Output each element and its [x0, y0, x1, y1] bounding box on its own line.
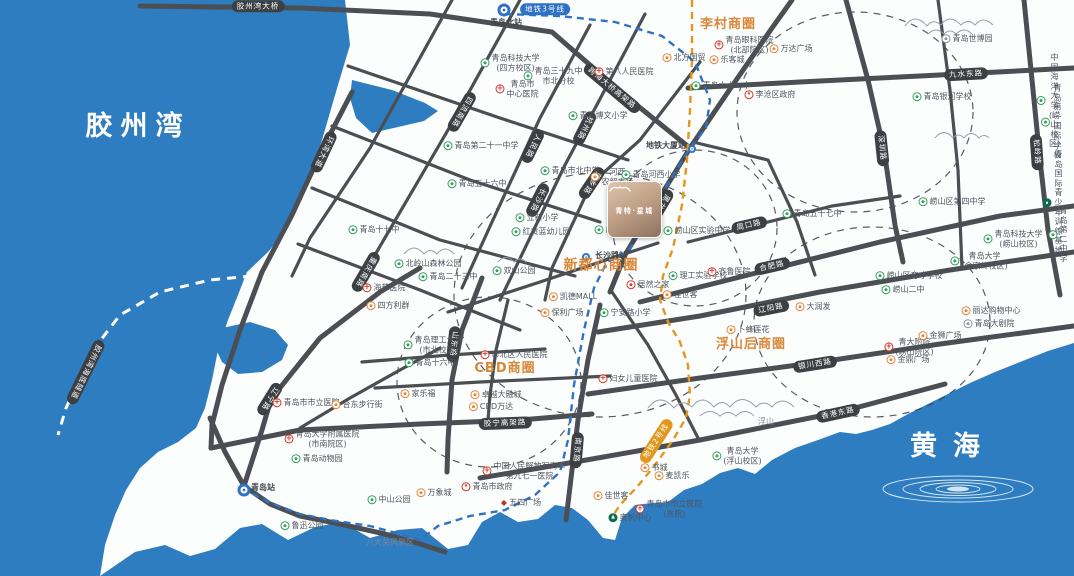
map-label-text: 南京路	[572, 437, 582, 463]
school-icon	[950, 257, 959, 266]
map-label-shopping: 保利广场	[541, 308, 584, 318]
map-label-text: 青岛二十三中	[430, 272, 478, 282]
map-label-shopping: 四方利群	[367, 301, 410, 311]
hospital-icon	[285, 435, 294, 444]
map-label-hospital: 中国人民解放军海军 第九七一医院	[483, 461, 566, 480]
map-label-text: 中山公园	[379, 495, 411, 505]
map-label-school: 崂山区育才学校	[876, 271, 943, 281]
shopred-icon	[627, 281, 636, 290]
map-label-park: 鲁迅公园	[281, 521, 324, 531]
park-icon	[281, 522, 290, 531]
map-label-text: 深圳路	[877, 135, 887, 161]
school-icon	[876, 272, 885, 281]
map-label-text: 八大关风景区	[366, 538, 414, 548]
hospital-icon	[884, 343, 893, 352]
map-label-text: 青岛六十一中	[703, 81, 751, 91]
hospital-icon	[595, 68, 604, 77]
shopping-icon	[591, 173, 600, 182]
map-label-text: 麦凯乐	[666, 471, 690, 481]
map-label-text: 乐客城	[721, 55, 745, 65]
map-label-text: 佳世客	[674, 290, 698, 300]
map-label-text: 四方利群	[378, 301, 410, 311]
map-label-text: 卜蜂莲花	[738, 325, 770, 335]
map-label-text: 地铁3号线	[525, 5, 565, 13]
map-label-text: 红黄蓝幼儿园	[523, 227, 571, 237]
map-label-hospital: 市北区人民医院	[481, 350, 548, 360]
shopping-icon	[663, 54, 672, 63]
map-label-hospital: 青岛大学附属医院 (市南院区)	[285, 429, 360, 448]
map-label-road: 胶宁高架路	[479, 416, 532, 429]
map-label-school: 崂山区第四中学	[919, 197, 986, 207]
school-icon	[919, 198, 928, 207]
map-label-text: 青岛第一国际学校	[1052, 84, 1063, 161]
map-label-district: CBD商圈	[474, 361, 535, 377]
shopping-icon	[367, 302, 376, 311]
school-icon	[1041, 118, 1050, 127]
map-label-school: 青岛博文小学	[569, 111, 628, 121]
map-label-school: 青岛银河学校	[913, 92, 972, 102]
map-label-shopping: 凯德MALL	[549, 292, 597, 302]
map-label-shopping: 卜蜂莲花	[727, 325, 770, 335]
map-label-shopred: 居然之家	[627, 280, 670, 290]
govt-icon	[462, 483, 471, 492]
map-label-text: 李村商圈	[700, 17, 756, 33]
map-label-road: 九水东路	[944, 67, 989, 81]
map-label-text: 青岛眼科医院 (北部院区)	[726, 35, 774, 54]
map-label-hospital: 妇女儿童医院	[599, 374, 658, 384]
map-label-shopping: 北方国贸	[663, 53, 706, 63]
shopping-icon	[594, 492, 603, 501]
map-label-text: 双山公园	[504, 266, 536, 276]
hospital-icon	[483, 467, 492, 476]
map-label-school: 青岛科技大学 (崂山校区)	[984, 229, 1043, 248]
map-label-shopping: 大润发	[796, 302, 831, 312]
school-icon	[349, 226, 358, 235]
map-label-text: 鲁迅公园	[292, 521, 324, 531]
map-label-text: 海慈医院	[374, 283, 406, 293]
map-label-text: 中国人民解放军海军 第九七一医院	[494, 461, 566, 480]
map-label-text: 市北区人民医院	[492, 350, 548, 360]
map-label-text: 青岛市政府	[473, 482, 513, 492]
shopping-icon	[417, 489, 426, 498]
school-icon	[404, 341, 413, 350]
map-label-gray: 青岛大剧院	[964, 319, 1015, 329]
shopping-icon	[710, 56, 719, 65]
map-label-text: 万达广场	[781, 44, 813, 54]
map-label-text: 青岛世博园	[953, 34, 993, 44]
map-label-govt: 李沧区政府	[745, 90, 796, 100]
school-icon	[1049, 231, 1058, 240]
shopping-icon	[469, 403, 478, 412]
map-label-shopping: 金狮广场	[919, 331, 962, 341]
map-label-shopping: 乐客城	[710, 55, 745, 65]
hospital-icon	[481, 351, 490, 360]
map-label-school: 青岛六十一中	[692, 81, 751, 91]
map-label-text: 佳世客	[605, 491, 629, 501]
map-label-text: 青岛大剧院	[975, 319, 1015, 329]
park-icon	[493, 267, 502, 276]
map-label-school: 青岛十六中	[405, 358, 456, 368]
park-icon	[395, 260, 404, 269]
shopping-icon	[796, 303, 805, 312]
map-label-text: 崂山区实验中学	[675, 226, 731, 236]
sail-icon	[609, 514, 618, 523]
map-label-text: 青岛银河学校	[924, 92, 972, 102]
shopping-icon	[727, 326, 736, 335]
map-label-school: 立新小学	[516, 213, 559, 223]
map-label-text: 新都心商圈	[564, 258, 639, 275]
map-label-school: 崂山区实验中学	[664, 226, 731, 236]
school-icon	[783, 210, 792, 219]
map-label-text: 北方国贸	[674, 53, 706, 63]
school-icon	[481, 59, 490, 68]
shopping-icon	[641, 464, 650, 473]
school-icon	[882, 286, 891, 295]
map-label-hospital: 第八人民医院	[595, 67, 654, 77]
map-label-school: 青岛理工大学 (市北校区)	[404, 335, 463, 354]
shopping-icon	[887, 356, 896, 365]
map-label-shopping: 佳世客	[663, 290, 698, 300]
map-label-hospital: 青岛市 中心医院	[496, 79, 539, 98]
map-label-school: 青岛河西小学	[622, 170, 681, 180]
map-label-sail: 奥帆中心	[609, 513, 652, 523]
map-label-text: 青岛站	[251, 483, 275, 493]
school-icon	[595, 226, 604, 235]
school-icon	[600, 309, 609, 318]
school-icon	[569, 112, 578, 121]
map-label-shopping: 万达广场	[770, 44, 813, 54]
map-label-shopping: 麦凯乐	[655, 471, 690, 481]
map-label-text: 青岛大学 (金家岭校区)	[961, 251, 1007, 270]
map-label-text: 青岛河西小学	[633, 170, 681, 180]
shopping-icon	[401, 390, 410, 399]
map-label-school: 青岛第一国际学校	[1041, 84, 1063, 161]
map-label-text: CBD商圈	[474, 361, 535, 377]
project-site-name: 青特·星城	[615, 206, 653, 216]
map-label-school: 青岛二十三中	[419, 272, 478, 282]
map-label-school: 崂山二中	[882, 285, 925, 295]
map-label-text: 立新小学	[527, 213, 559, 223]
map-label-school: 青岛第二中学	[1049, 206, 1068, 264]
map-label-station: 青岛北站	[490, 18, 522, 28]
map-label-school: 青岛大学 (浮山校区)	[712, 446, 761, 465]
map-label-text: 胶州湾大桥	[237, 2, 280, 10]
school-icon	[622, 171, 631, 180]
map-label-text: 齐鲁医院	[719, 267, 751, 277]
shopping-icon	[549, 293, 558, 302]
map-label-text: 卓越大融城	[482, 390, 522, 400]
school-icon	[448, 180, 457, 189]
map-label-hospital: 青岛眼科医院 (北部院区)	[715, 35, 774, 54]
map-label-school: 青岛大学 (金家岭校区)	[950, 251, 1007, 270]
map-label-sea: 黄海	[910, 431, 996, 463]
gray-icon	[942, 35, 951, 44]
map-label-text: 青岛动物园	[303, 454, 343, 464]
shopping-icon	[770, 45, 779, 54]
map-label-text: 保利广场	[552, 308, 584, 318]
map-label-shopping: 卓越大融城	[471, 390, 522, 400]
map-label-text: 丽达购物中心	[973, 306, 1021, 316]
map-label-text: 青岛第二中学	[1060, 206, 1068, 264]
map-label-text: 浮山后商圈	[716, 337, 786, 353]
school-icon	[541, 167, 550, 176]
project-site-marker: 青特·星城	[607, 181, 662, 238]
map-label-text: 李沧区政府	[756, 90, 796, 100]
school-icon	[512, 228, 521, 237]
map-label-text: 黄海	[910, 431, 996, 463]
map-label-park: 北岭山森林公园	[395, 259, 462, 269]
map-label-plain: 浮山	[758, 417, 774, 427]
map-label-text: 九水东路	[949, 69, 983, 78]
school-icon	[669, 272, 678, 281]
map-label-text: 崂山区第四中学	[930, 197, 986, 207]
shopping-icon	[332, 401, 341, 410]
map-label-text: 青岛五十六中	[459, 179, 507, 189]
map-label-sea: 胶州湾	[86, 111, 191, 143]
map-label-govt: 青岛市政府	[462, 482, 513, 492]
shopping-icon	[919, 332, 928, 341]
map-label-landmark: 五四广场	[501, 498, 541, 508]
map-label-school: 红黄蓝幼儿园	[512, 227, 571, 237]
map-label-text: 青岛第二十一中学	[455, 141, 519, 151]
landmark-icon	[501, 499, 507, 507]
map-label-text: 奥帆中心	[620, 513, 652, 523]
map-label-shopping: 金鼎广场	[887, 355, 930, 365]
map-label-text: 青岛北站	[490, 18, 522, 28]
map-label-station: 青岛站	[251, 483, 275, 493]
map-label-school: 宁安路小学	[600, 308, 651, 318]
map-label-text: 青岛市 中心医院	[507, 79, 539, 98]
map-label-shopping: 丽达购物中心	[962, 306, 1021, 316]
map-label-text: 青岛十六中	[416, 358, 456, 368]
map-label-shopping: 万象城	[417, 488, 452, 498]
hospital-icon	[273, 399, 282, 408]
map-label-stnicon	[238, 484, 251, 497]
map-label-gray: 青岛世博园	[942, 34, 993, 44]
map-label-text: 万象城	[428, 488, 452, 498]
hospital-icon	[636, 505, 645, 514]
map-label-text: 青岛三十九中 市北分校	[535, 66, 583, 85]
map-label-plain: 八大关风景区	[366, 538, 414, 548]
map-label-park: 青岛动物园	[292, 454, 343, 464]
map-label-m3: 地铁3号线	[520, 3, 570, 15]
hospital-icon	[715, 41, 724, 50]
map-label-text: 大润发	[807, 302, 831, 312]
qingdao-location-map: 青特·星城 胶州湾黄海八大关风景区浮山李村商圈新都心商圈CBD商圈浮山后商圈胶州…	[0, 0, 1074, 576]
hospital-icon	[708, 268, 717, 277]
gray-icon	[964, 320, 973, 329]
map-label-district: 浮山后商圈	[716, 337, 786, 353]
map-label-text: 地铁大厦站	[646, 141, 686, 151]
shopping-icon	[655, 472, 664, 481]
school-icon	[692, 82, 701, 91]
map-label-text: 青岛博文小学	[580, 111, 628, 121]
map-label-district: 新都心商圈	[564, 258, 639, 275]
school-icon	[405, 359, 414, 368]
map-label-school: 青岛五十七中	[783, 209, 842, 219]
map-label-text: 第八人民医院	[606, 67, 654, 77]
map-label-text: 五四广场	[509, 498, 541, 508]
park-icon	[368, 496, 377, 505]
map-label-text: 青岛理工大学 (市北校区)	[415, 335, 463, 354]
hospital-icon	[496, 85, 505, 94]
map-label-text: 胶州湾	[86, 111, 191, 143]
park-icon	[292, 455, 301, 464]
map-label-text: 崂山区育才学校	[887, 271, 943, 281]
map-label-text: 青岛科技大学 (崂山校区)	[995, 229, 1043, 248]
map-label-road: 胶州湾大桥	[232, 0, 285, 12]
map-label-shopping: 佳世客	[594, 491, 629, 501]
map-label-text: 青岛十七中	[360, 225, 400, 235]
map-label-shopping: 台东步行街	[332, 400, 383, 410]
map-label-hospital: 青岛市市立医院	[273, 398, 340, 408]
map-label-text: 宁安路小学	[611, 308, 651, 318]
map-label-park: 双山公园	[493, 266, 536, 276]
map-label-text: 胶宁高架路	[484, 419, 527, 428]
school-icon	[664, 227, 673, 236]
school-icon	[419, 273, 428, 282]
map-label-text: 青岛大学 (浮山校区)	[723, 446, 761, 465]
map-label-text: 崂山二中	[893, 285, 925, 295]
shopping-icon	[541, 309, 550, 318]
map-label-school: 青岛十七中	[349, 225, 400, 235]
hospital-icon	[599, 375, 608, 384]
school-icon	[516, 214, 525, 223]
map-label-school: 青岛五十六中	[448, 179, 507, 189]
shopping-icon	[471, 391, 480, 400]
school-icon	[444, 142, 453, 151]
map-label-school: 青岛第二十一中学	[444, 141, 519, 151]
map-label-text: 凯德MALL	[560, 292, 597, 302]
school-icon	[913, 93, 922, 102]
map-label-text: 居然之家	[638, 280, 670, 290]
map-label-text: 浮山	[758, 417, 774, 427]
map-label-text: CBD万达	[480, 402, 513, 412]
shopping-icon	[663, 291, 672, 300]
map-label-hospital: 齐鲁医院	[708, 267, 751, 277]
shopping-icon	[962, 307, 971, 316]
map-label-hospital: 海慈医院	[363, 283, 406, 293]
map-label-stnicon2	[688, 145, 696, 153]
school-icon	[712, 452, 721, 461]
map-label-station: 地铁大厦站	[646, 141, 686, 151]
bird-logo-icon	[608, 182, 632, 193]
school-icon	[984, 235, 993, 244]
map-label-text: 金狮广场	[930, 331, 962, 341]
map-label-text: 家乐福	[412, 389, 436, 399]
map-label-text: 青岛大学附属医院 (市南院区)	[296, 429, 360, 448]
map-label-text: 北岭山森林公园	[406, 259, 462, 269]
map-label-text: 妇女儿童医院	[610, 374, 658, 384]
map-label-park: 中山公园	[368, 495, 411, 505]
map-label-text: 金鼎广场	[898, 355, 930, 365]
map-label-district: 李村商圈	[700, 17, 756, 33]
map-label-stnicon	[498, 4, 511, 17]
map-label-shopping: CBD万达	[469, 402, 513, 412]
govt-icon	[745, 91, 754, 100]
map-label-shopping: 家乐福	[401, 389, 436, 399]
map-label-text: 青岛市市立医院 (东院)	[647, 499, 703, 518]
hospital-icon	[363, 284, 372, 293]
map-label-text: 青岛五十七中	[794, 209, 842, 219]
map-label-text: 台东步行街	[343, 400, 383, 410]
